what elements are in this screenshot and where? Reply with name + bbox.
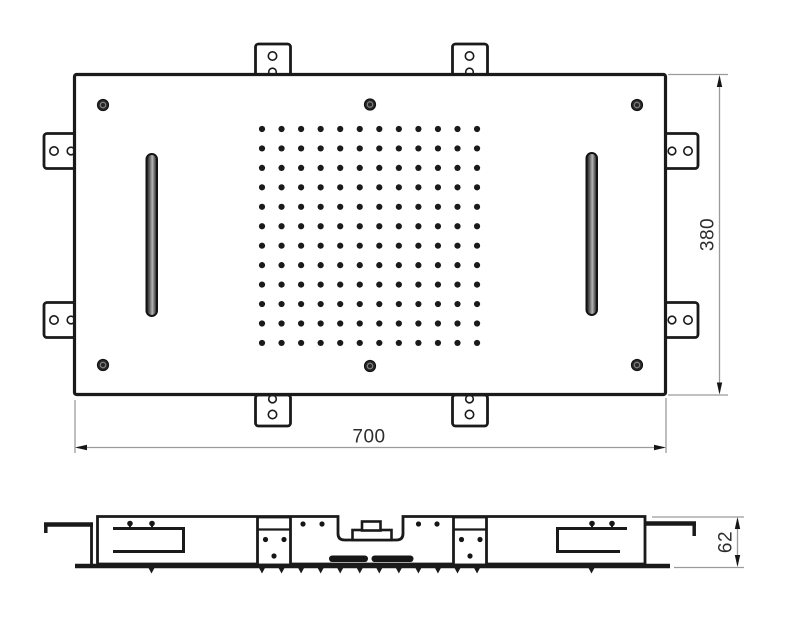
dimension-380: 380 (668, 75, 728, 396)
nozzle-dot (415, 340, 421, 346)
nozzle-dot (298, 340, 304, 346)
nozzle-dot (474, 223, 480, 229)
screw-icon (631, 359, 642, 370)
nozzle-dot (298, 223, 304, 229)
nozzle-dot (357, 320, 363, 326)
nozzle-dot (454, 340, 460, 346)
nozzle-dot (357, 204, 363, 210)
nozzle-dot (396, 320, 402, 326)
nozzle-dot (278, 282, 284, 288)
nozzle-dot (376, 320, 382, 326)
nozzle-dot (337, 184, 343, 190)
nozzle-dot (376, 282, 382, 288)
nozzle-dot (376, 340, 382, 346)
nozzle-dot (396, 204, 402, 210)
arrow-down-icon (717, 383, 722, 395)
nozzle-dot (318, 320, 324, 326)
nozzle-dot (259, 301, 265, 307)
nozzle-dot (357, 243, 363, 249)
mounting-tab-right-lower (664, 303, 698, 338)
nozzle-dot (415, 243, 421, 249)
nozzle-dot (474, 301, 480, 307)
nozzle-dot (454, 301, 460, 307)
nozzle-dot (415, 320, 421, 326)
arrow-down-icon (735, 555, 740, 567)
nozzle-dot (474, 184, 480, 190)
nozzle-dot (298, 165, 304, 171)
nozzle-dot (298, 262, 304, 268)
mounting-tab-left-upper (44, 134, 76, 169)
nozzle-dot (357, 282, 363, 288)
nozzle-dot (278, 320, 284, 326)
nozzle-dot (337, 204, 343, 210)
nozzle-dot (474, 320, 480, 326)
right-hook (646, 523, 696, 536)
nozzle-dot (259, 243, 265, 249)
technical-drawing-page: 700 380 62 (0, 0, 800, 624)
arrow-up-icon (735, 517, 740, 529)
nozzle-dot (337, 320, 343, 326)
nozzle-dot (474, 204, 480, 210)
nozzle-dot (396, 223, 402, 229)
nozzle-dot (415, 262, 421, 268)
mounting-tab-left-lower (44, 303, 76, 338)
nozzle-dot (318, 282, 324, 288)
nozzle-dot (376, 204, 382, 210)
nozzle-dot (357, 262, 363, 268)
nozzle-tooth (337, 567, 344, 574)
shower-panel-drawing: 700 380 62 (0, 0, 800, 624)
nozzle-dot (278, 243, 284, 249)
nozzle-dot (435, 262, 441, 268)
nozzle-tooth (434, 567, 441, 574)
nozzle-dot (337, 340, 343, 346)
nozzle-dot (435, 165, 441, 171)
nozzle-dot (474, 126, 480, 132)
mounting-tab-top-left (256, 44, 291, 76)
nozzle-dot (318, 223, 324, 229)
nozzle-dot (357, 223, 363, 229)
nozzle-dot (396, 165, 402, 171)
nozzle-dot (396, 184, 402, 190)
nozzle-dot (415, 223, 421, 229)
nozzle-dot (376, 126, 382, 132)
nozzle-dot (318, 204, 324, 210)
nozzle-dot (337, 126, 343, 132)
inlet-fitting (353, 522, 392, 541)
nozzle-dot (259, 165, 265, 171)
nozzle-dot (435, 282, 441, 288)
nozzle-dot (357, 126, 363, 132)
nozzle-dot (298, 301, 304, 307)
nozzle-dot (357, 340, 363, 346)
mounting-tab-bottom-left (256, 395, 291, 426)
nozzle-dot (337, 145, 343, 151)
nozzle-dot (318, 301, 324, 307)
nozzle-dot (259, 126, 265, 132)
nozzle-dot (357, 145, 363, 151)
left-hook (44, 523, 93, 565)
nozzle-dot (474, 165, 480, 171)
nozzle-dot (278, 223, 284, 229)
nozzle-dot (318, 262, 324, 268)
nozzle-dot (298, 145, 304, 151)
nozzle-dot (454, 262, 460, 268)
height-dimension-label: 380 (698, 218, 719, 251)
nozzle-dot (376, 262, 382, 268)
nozzle-tooth (278, 567, 285, 574)
nozzle-dot (376, 184, 382, 190)
nozzle-dot (415, 301, 421, 307)
nozzle-dot (435, 184, 441, 190)
nozzle-dot (298, 243, 304, 249)
diffuser-bar-right (372, 556, 414, 563)
nozzle-dot (259, 204, 265, 210)
nozzle-dot (474, 282, 480, 288)
nozzle-tooth (415, 567, 422, 574)
width-dimension-label: 700 (352, 427, 385, 448)
nozzle-dot (376, 243, 382, 249)
nozzle-dot (454, 282, 460, 288)
nozzle-dot (337, 262, 343, 268)
nozzle-dot (435, 223, 441, 229)
nozzle-tooth (356, 567, 363, 574)
nozzle-dot (415, 126, 421, 132)
mounting-tab-bottom-right (453, 395, 488, 426)
nozzle-dot (454, 184, 460, 190)
screw-icon (97, 359, 108, 370)
nozzle-dot (454, 243, 460, 249)
nozzle-dot (435, 126, 441, 132)
nozzle-dot (435, 320, 441, 326)
top-view (44, 44, 698, 426)
depth-dimension-label: 62 (716, 531, 737, 553)
rail-bracket-left (258, 517, 291, 565)
nozzle-dot (435, 204, 441, 210)
nozzle-dot (298, 204, 304, 210)
diffuser-bar-left (329, 556, 368, 563)
nozzle-dot (415, 165, 421, 171)
nozzle-tooth (298, 567, 305, 574)
screw-icon (364, 360, 375, 371)
nozzle-dot (259, 223, 265, 229)
nozzle-dot (376, 223, 382, 229)
nozzle-dot (396, 126, 402, 132)
panel-face (75, 75, 666, 395)
nozzle-tooth (148, 567, 155, 574)
nozzle-dot (435, 243, 441, 249)
nozzle-dot (415, 145, 421, 151)
nozzle-dot (435, 145, 441, 151)
nozzle-dot (318, 340, 324, 346)
nozzle-dot (318, 126, 324, 132)
nozzle-dot (318, 165, 324, 171)
nozzle-dot (337, 223, 343, 229)
nozzle-dot (396, 243, 402, 249)
nozzle-dot (337, 282, 343, 288)
nozzle-dot (278, 126, 284, 132)
nozzle-dot (396, 282, 402, 288)
nozzle-dot (298, 184, 304, 190)
nozzle-dot (454, 223, 460, 229)
nozzle-dot (318, 184, 324, 190)
waterfall-slot-right (587, 153, 598, 315)
mounting-tab-right-upper (664, 134, 698, 169)
nozzle-dot (278, 184, 284, 190)
nozzle-tooth (376, 567, 383, 574)
nozzle-dot (259, 282, 265, 288)
nozzle-dot (396, 145, 402, 151)
nozzle-dot (278, 301, 284, 307)
nozzle-dot (318, 243, 324, 249)
nozzle-tooth (259, 567, 266, 574)
nozzle-dot (278, 204, 284, 210)
nozzle-dot (278, 340, 284, 346)
nozzle-dot (474, 340, 480, 346)
nozzle-dot (278, 145, 284, 151)
nozzle-dot (415, 204, 421, 210)
nozzle-dot (454, 126, 460, 132)
nozzle-dot (454, 145, 460, 151)
nozzle-dot (454, 204, 460, 210)
nozzle-dot (278, 165, 284, 171)
nozzle-dot (298, 282, 304, 288)
nozzle-dot (474, 262, 480, 268)
nozzle-dot (318, 145, 324, 151)
screw-icon (631, 99, 642, 110)
nozzle-dot (474, 243, 480, 249)
nozzle-dot (357, 184, 363, 190)
nozzle-dot (376, 145, 382, 151)
nozzle-tooth (454, 567, 461, 574)
nozzle-dot (396, 301, 402, 307)
nozzle-dot (474, 145, 480, 151)
arrow-up-icon (717, 75, 722, 87)
nozzle-dot (337, 243, 343, 249)
side-view (44, 517, 696, 574)
arrow-right-icon (654, 445, 666, 450)
screw-icon (364, 99, 375, 110)
mounting-tab-top-right (453, 44, 488, 76)
nozzle-tooth (588, 567, 595, 574)
nozzle-tooth (317, 567, 324, 574)
nozzle-dot (337, 301, 343, 307)
nozzle-dot (259, 320, 265, 326)
nozzle-dot (278, 262, 284, 268)
nozzle-dot (396, 340, 402, 346)
nozzle-dot (259, 145, 265, 151)
nozzle-dot (259, 262, 265, 268)
dimension-700: 700 (75, 398, 666, 453)
nozzle-dot (298, 126, 304, 132)
nozzle-dot (337, 165, 343, 171)
rail-bracket-right (454, 517, 487, 565)
nozzle-tooth (395, 567, 402, 574)
nozzle-dot (376, 165, 382, 171)
nozzle-dot (415, 184, 421, 190)
nozzle-dot (298, 320, 304, 326)
nozzle-dot (454, 320, 460, 326)
arrow-left-icon (75, 445, 87, 450)
nozzle-dot (454, 165, 460, 171)
nozzle-dot (259, 340, 265, 346)
nozzle-dot (396, 262, 402, 268)
nozzle-dot (435, 301, 441, 307)
waterfall-slot-left (147, 154, 158, 316)
screw-icon (97, 99, 108, 110)
nozzle-dot (357, 165, 363, 171)
nozzle-dot (376, 301, 382, 307)
nozzle-dot (415, 282, 421, 288)
nozzle-tooth (474, 567, 481, 574)
nozzle-dot (357, 301, 363, 307)
nozzle-dot (259, 184, 265, 190)
nozzle-dot (435, 340, 441, 346)
